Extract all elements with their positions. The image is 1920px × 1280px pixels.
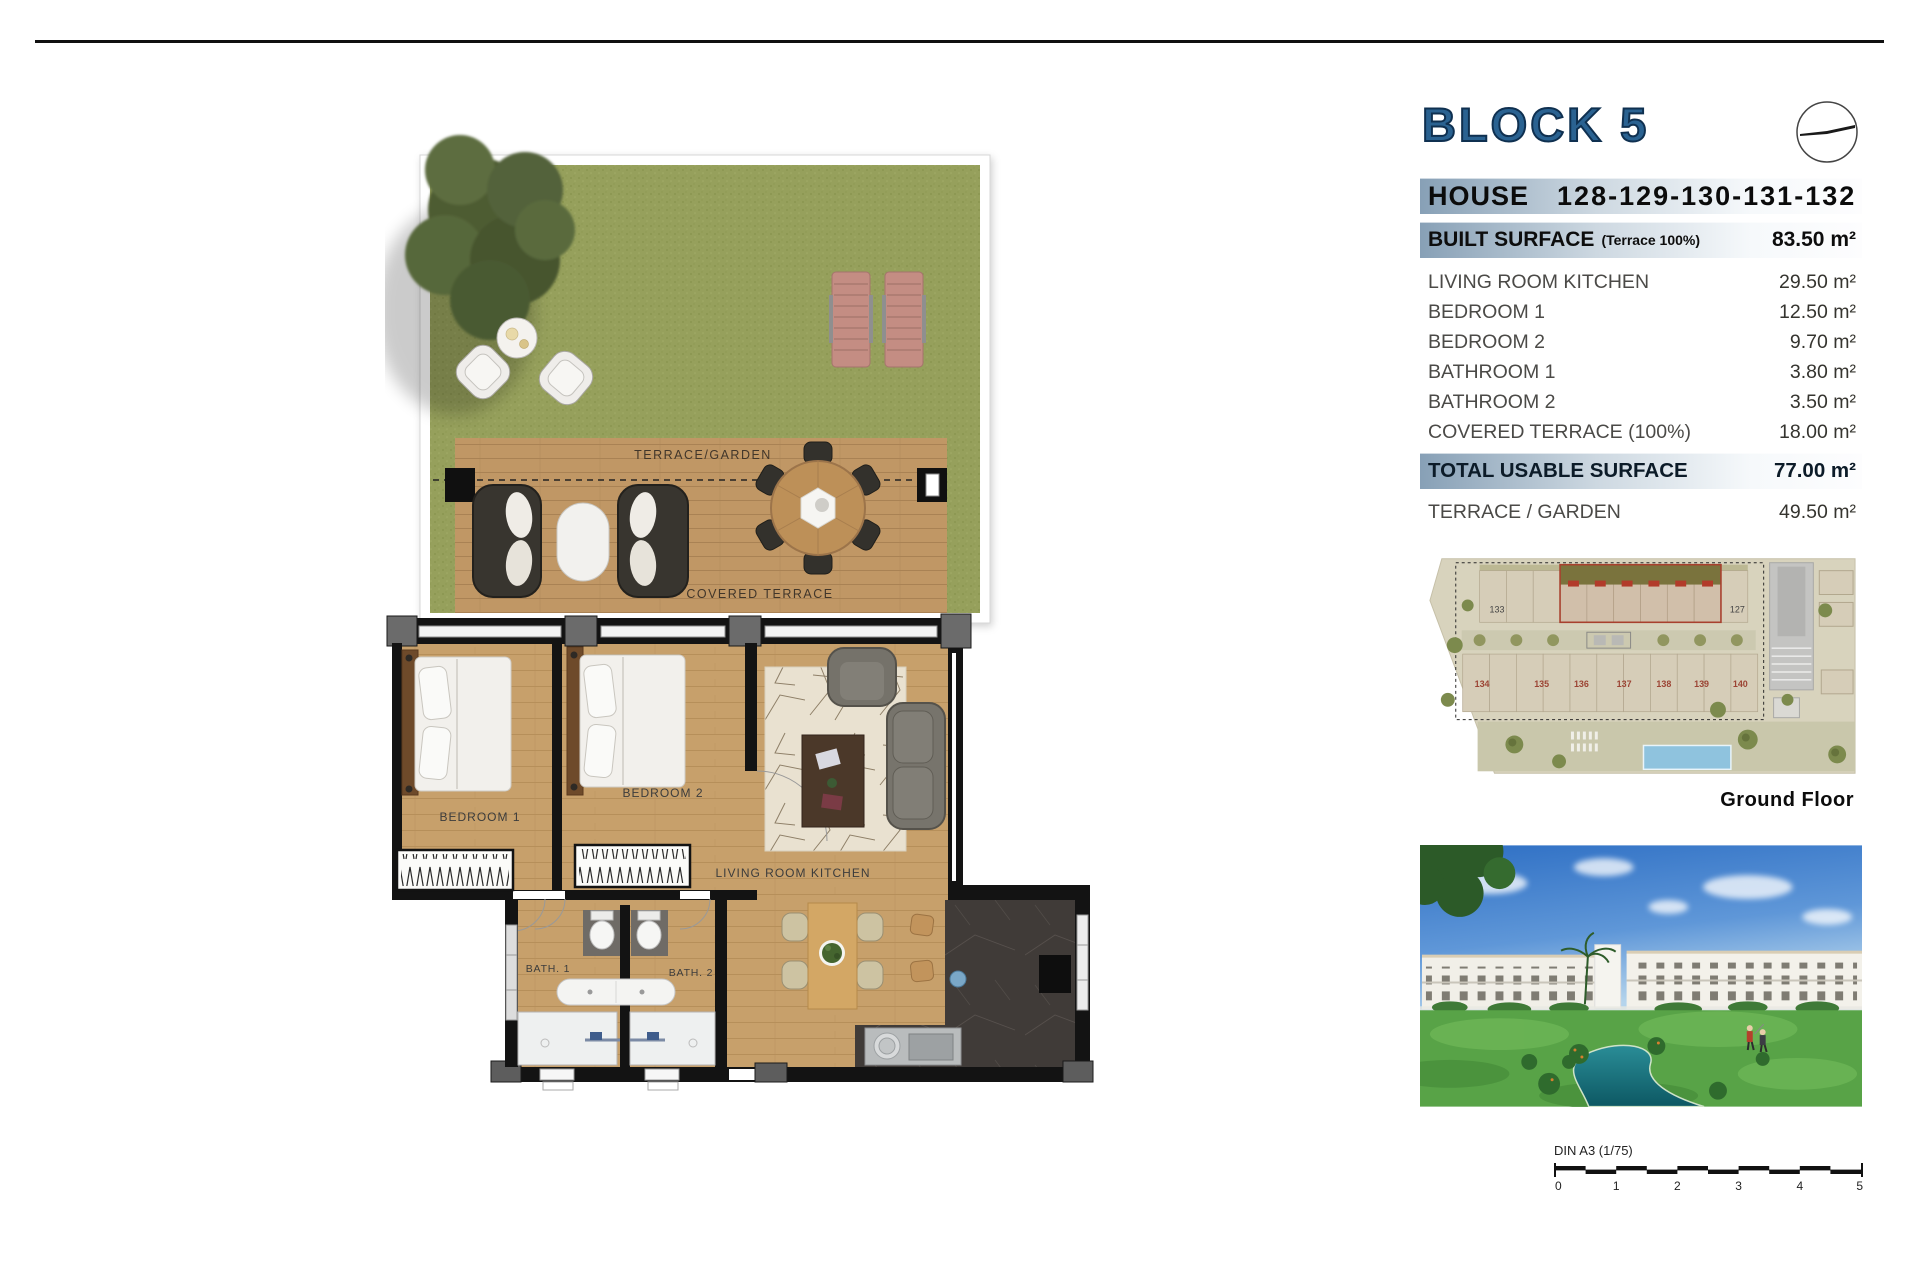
bath-window xyxy=(506,925,517,1020)
bar-stool xyxy=(910,914,935,937)
living-label: LIVING ROOM KITCHEN xyxy=(715,866,870,880)
total-surface-bar: TOTAL USABLE SURFACE 77.00 m² xyxy=(1420,453,1862,489)
svg-text:5: 5 xyxy=(1856,1179,1863,1193)
svg-text:4: 4 xyxy=(1796,1179,1803,1193)
unit-number: 127 xyxy=(1730,604,1745,614)
bedroom1-label: BEDROOM 1 xyxy=(439,810,520,824)
terrace-coffee-table xyxy=(557,503,609,581)
svg-text:1: 1 xyxy=(1613,1179,1620,1193)
top-rule xyxy=(35,40,1884,43)
house-bar: HOUSE 128-129-130-131-132 xyxy=(1420,178,1862,214)
scale-bar: DIN A3 (1/75) 0 1 2 3 4 5 xyxy=(1553,1143,1865,1201)
facade-wall xyxy=(387,614,971,648)
unit-number: 133 xyxy=(1490,604,1505,614)
house-label: HOUSE xyxy=(1428,181,1529,212)
page-title: BLOCK 5 xyxy=(1422,97,1649,152)
terrace-garden-label: TERRACE/GARDEN xyxy=(634,448,772,462)
armchair xyxy=(828,648,896,706)
ground-floor-caption: Ground Floor xyxy=(1720,789,1854,812)
svg-text:138: 138 xyxy=(1656,679,1671,689)
covered-terrace-label: COVERED TERRACE xyxy=(686,587,833,601)
svg-text:2: 2 xyxy=(1674,1179,1681,1193)
built-surface-label: BUILT SURFACE xyxy=(1428,228,1594,252)
table-row: BEDROOM 2 9.70 m² xyxy=(1420,327,1862,357)
kitchen-window xyxy=(1077,915,1088,1010)
table-row: BATHROOM 1 3.80 m² xyxy=(1420,357,1862,387)
terrace-garden-row: TERRACE / GARDEN 49.50 m² xyxy=(1420,497,1862,527)
svg-text:0: 0 xyxy=(1555,1179,1562,1193)
house-numbers: 128-129-130-131-132 xyxy=(1557,181,1856,212)
svg-text:134: 134 xyxy=(1475,679,1490,689)
highlighted-units xyxy=(1560,565,1721,623)
sun-lounger xyxy=(882,272,926,367)
terrace-pillar xyxy=(445,468,475,502)
svg-text:137: 137 xyxy=(1617,679,1632,689)
site-plan: 133 127 134 135 136 xyxy=(1420,550,1862,785)
bed-2 xyxy=(567,647,685,795)
svg-text:139: 139 xyxy=(1694,679,1709,689)
svg-text:135: 135 xyxy=(1534,679,1549,689)
svg-text:136: 136 xyxy=(1574,679,1589,689)
surface-rows: LIVING ROOM KITCHEN 29.50 m² BEDROOM 1 1… xyxy=(1420,267,1862,447)
house-interior: BEDROOM 1 BEDROOM 2 xyxy=(387,614,1093,1090)
table-row: COVERED TERRACE (100%) 18.00 m² xyxy=(1420,417,1862,447)
total-value: 77.00 m² xyxy=(1774,459,1856,483)
total-label: TOTAL USABLE SURFACE xyxy=(1428,459,1688,483)
coffee-table xyxy=(802,735,864,827)
info-panel: BLOCK 5 HOUSE 128-129-130-131-132 BUILT … xyxy=(1420,95,1862,1255)
built-surface-bar: BUILT SURFACE (Terrace 100%) 83.50 m² xyxy=(1420,222,1862,258)
north-compass-icon xyxy=(1794,99,1860,165)
property-photo xyxy=(1420,845,1862,1107)
garden-side-table xyxy=(497,318,537,358)
kitchen-sink-round xyxy=(950,971,966,987)
svg-text:140: 140 xyxy=(1733,679,1748,689)
bedroom2-label: BEDROOM 2 xyxy=(622,786,703,800)
sofa xyxy=(887,703,945,829)
table-row: BEDROOM 1 12.50 m² xyxy=(1420,297,1862,327)
pool xyxy=(1643,745,1730,769)
built-surface-note: (Terrace 100%) xyxy=(1601,232,1700,248)
built-surface-value: 83.50 m² xyxy=(1772,228,1856,252)
window-sill xyxy=(648,1082,678,1090)
bed-1 xyxy=(402,650,511,795)
terrace-door xyxy=(926,474,939,496)
bar-stool xyxy=(910,960,934,982)
terrace-garden-area: TERRACE/GARDEN COVERED TERRACE xyxy=(385,135,990,623)
bath1-label: BATH. 1 xyxy=(526,963,571,975)
window-sill xyxy=(543,1082,573,1090)
table-row: BATHROOM 2 3.50 m² xyxy=(1420,387,1862,417)
terrace-sofa xyxy=(473,485,541,597)
stove xyxy=(1039,955,1071,993)
table-row: LIVING ROOM KITCHEN 29.50 m² xyxy=(1420,267,1862,297)
svg-text:3: 3 xyxy=(1735,1179,1742,1193)
bath2-label: BATH. 2 xyxy=(669,967,714,979)
terrace-sofa xyxy=(618,485,688,597)
scale-label: DIN A3 (1/75) xyxy=(1554,1143,1633,1158)
scale-ticks: 0 1 2 3 4 5 xyxy=(1555,1179,1863,1193)
sun-lounger xyxy=(829,272,873,367)
floor-plan: TERRACE/GARDEN COVERED TERRACE xyxy=(385,95,1145,1105)
